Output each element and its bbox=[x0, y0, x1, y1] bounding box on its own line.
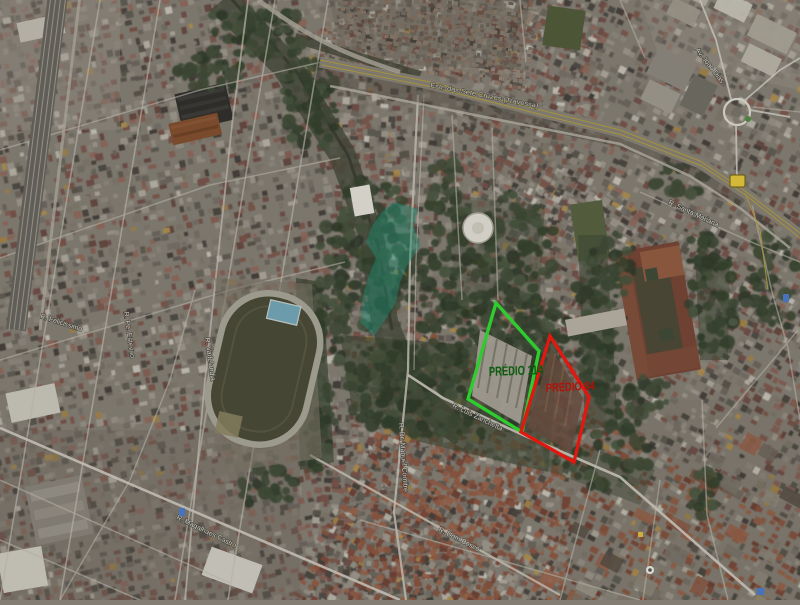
svg-text:PRÉDIO 114: PRÉDIO 114 bbox=[489, 362, 544, 379]
svg-text:PRÉDIO 84: PRÉDIO 84 bbox=[545, 377, 595, 395]
